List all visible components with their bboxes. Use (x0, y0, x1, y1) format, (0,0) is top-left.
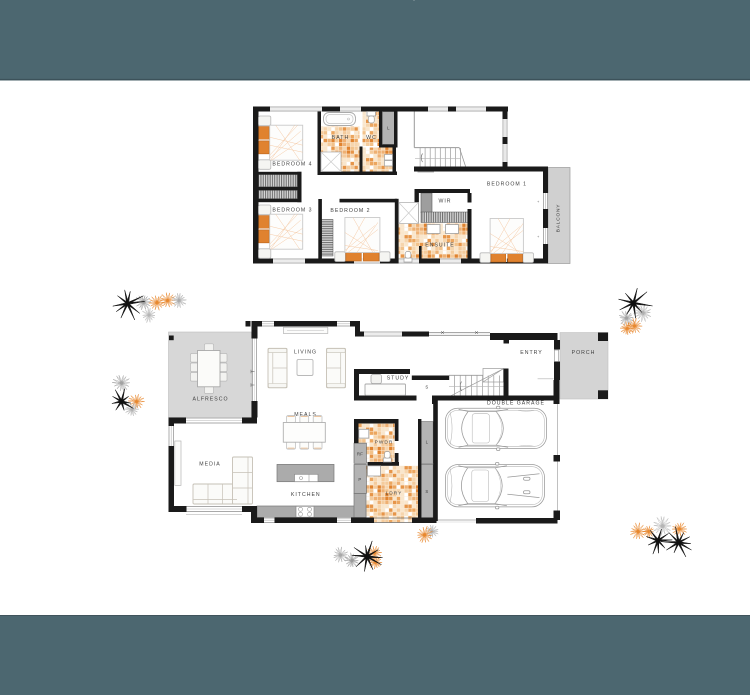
svg-text:LDRY: LDRY (386, 491, 403, 497)
svg-text:ALFRESCO: ALFRESCO (193, 397, 229, 403)
svg-text:BEDROOM 1: BEDROOM 1 (487, 182, 527, 188)
svg-text:BALCONY: BALCONY (556, 204, 562, 233)
svg-text:BEDROOM 3: BEDROOM 3 (272, 208, 312, 214)
svg-text:BEDROOM 4: BEDROOM 4 (272, 162, 312, 168)
svg-text:DOUBLE GARAGE: DOUBLE GARAGE (487, 401, 545, 407)
svg-text:WIR: WIR (438, 199, 451, 205)
svg-text:PORCH: PORCH (572, 350, 596, 356)
svg-text:PWDR: PWDR (375, 440, 394, 446)
svg-text:+: + (537, 199, 540, 204)
svg-text:LIVING: LIVING (294, 350, 317, 356)
svg-text:WC: WC (366, 135, 377, 141)
svg-text:BEDROOM 2: BEDROOM 2 (330, 208, 370, 214)
svg-text:ENTRY: ENTRY (520, 350, 543, 356)
svg-text:BATH: BATH (332, 135, 349, 141)
svg-text:RF: RF (357, 452, 363, 457)
svg-text:ENSUITE: ENSUITE (425, 243, 454, 249)
svg-text:P: P (358, 477, 361, 482)
svg-text:S: S (425, 385, 428, 390)
svg-text:KITCHEN: KITCHEN (291, 492, 321, 498)
svg-text:S: S (425, 489, 428, 494)
svg-text:+: + (537, 234, 540, 239)
svg-text:MEDIA: MEDIA (199, 462, 220, 468)
svg-text:L: L (387, 126, 390, 131)
svg-text:STUDY: STUDY (387, 376, 410, 382)
svg-text:L: L (426, 440, 429, 445)
